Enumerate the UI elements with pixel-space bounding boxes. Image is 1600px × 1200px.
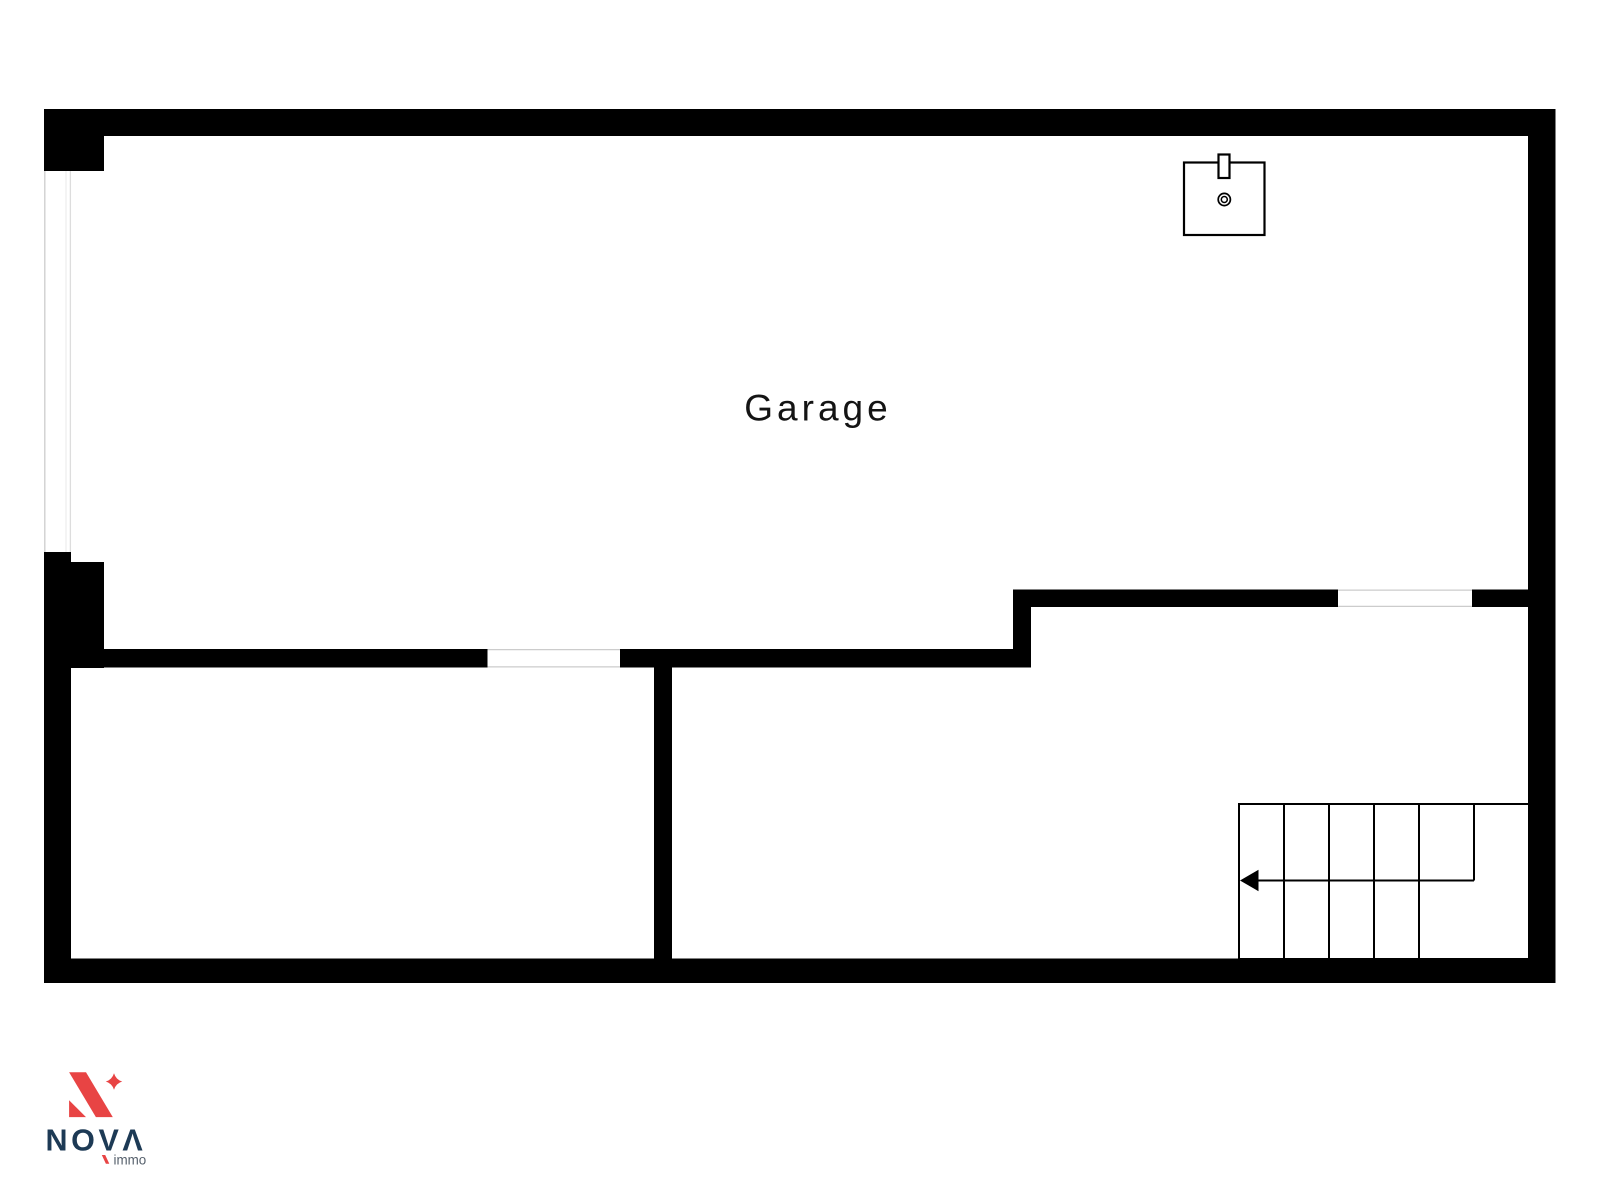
svg-text:immo: immo	[114, 1153, 147, 1168]
svg-text:Garage: Garage	[744, 388, 891, 429]
